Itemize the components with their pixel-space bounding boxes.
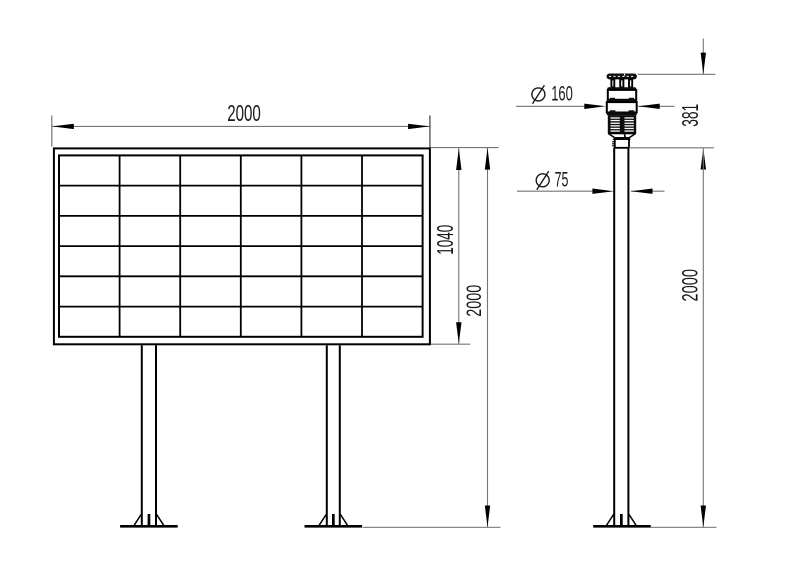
svg-text:381: 381 [677,104,703,127]
svg-text:2000: 2000 [462,285,486,317]
svg-text:160: 160 [551,82,573,106]
svg-text:2000: 2000 [677,269,702,302]
svg-text:2000: 2000 [227,100,261,126]
svg-text:1040: 1040 [432,225,458,255]
svg-text:75: 75 [555,168,569,192]
